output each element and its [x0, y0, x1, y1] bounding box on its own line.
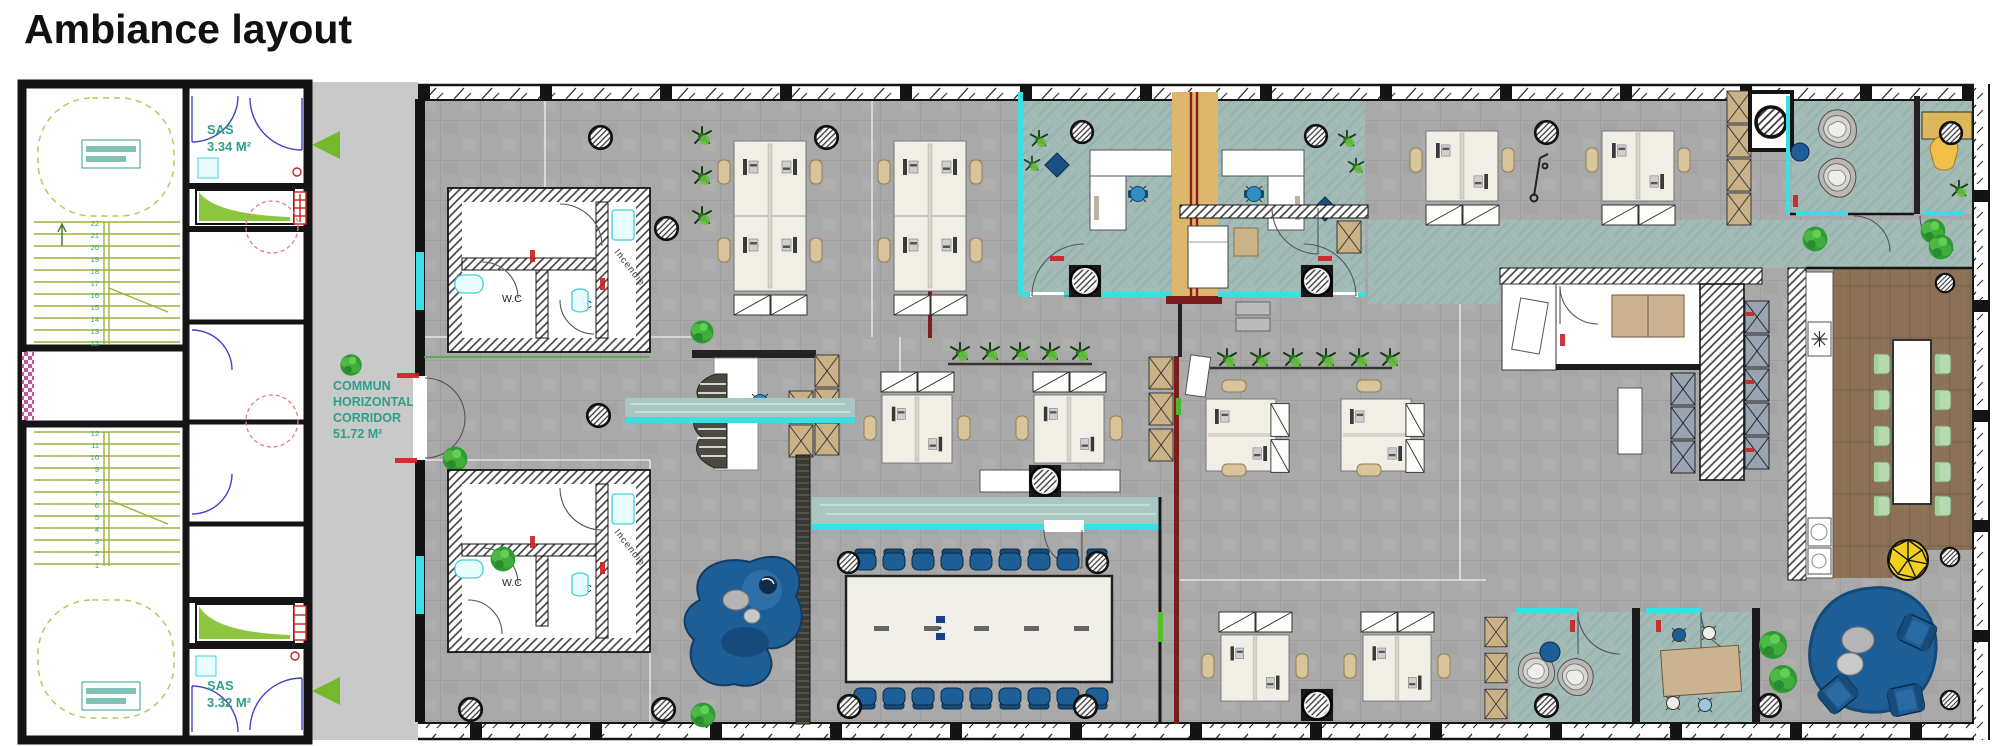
- stair-step-number: 7: [95, 489, 99, 498]
- svg-text:51.72 M²: 51.72 M²: [333, 427, 382, 441]
- boxed-column-icon: [1301, 265, 1333, 297]
- plant-icon: [443, 447, 468, 472]
- chair-white: [1666, 696, 1680, 710]
- svg-text:HORIZONTAL: HORIZONTAL: [333, 395, 414, 409]
- wc-block-top: W.C W.C Incendie: [424, 188, 650, 357]
- coffee-table: [1842, 627, 1874, 653]
- sas-fixture: [198, 158, 218, 178]
- svg-text:COMMUN: COMMUN: [333, 379, 391, 393]
- workstation-top-right-1: [1410, 131, 1514, 225]
- gray-cabinet-run-2: [1745, 301, 1769, 469]
- svg-text:CORRIDOR: CORRIDOR: [333, 411, 401, 425]
- frosted-glass-band: [812, 497, 1162, 525]
- elevator-box-top-right: [1750, 92, 1792, 150]
- stair-step-number: 12: [91, 339, 99, 348]
- door-tag: [1656, 620, 1661, 632]
- ramp-bottom: [186, 600, 308, 646]
- wardrobe: [1337, 221, 1361, 253]
- stair-step-number: 8: [95, 477, 99, 486]
- column-icon: [655, 217, 678, 240]
- side-table: [1234, 228, 1258, 256]
- glass-segment: [416, 252, 424, 310]
- column-icon: [1305, 125, 1327, 147]
- stair-note-box: [82, 140, 140, 168]
- stair-step-number: 21: [91, 231, 99, 240]
- stair-step-number: 4: [95, 525, 99, 534]
- mid-carpet-band-2: [1368, 268, 1500, 304]
- stair-step-number: 16: [91, 291, 99, 300]
- workstation-top-right-2: [1586, 131, 1690, 225]
- mid-carpet-band: [1368, 220, 1972, 268]
- column-icon: [815, 126, 838, 149]
- stair-step-number: 14: [91, 315, 99, 324]
- door-tag: [1560, 334, 1565, 346]
- green-marker: [1158, 612, 1163, 642]
- column-icon: [1940, 122, 1962, 144]
- stair-step-number: 2: [95, 549, 99, 558]
- sas-fixture: [196, 656, 216, 676]
- door-tag: [600, 562, 605, 574]
- blue-rug-lounge: [1810, 588, 1939, 718]
- stair-step-number: 12: [91, 429, 99, 438]
- stair-step-numbers-top: 2221201918171615141312: [91, 219, 99, 348]
- column-icon: [1936, 274, 1954, 292]
- wc-label: W.C: [502, 577, 522, 589]
- column-icon: [1758, 694, 1781, 717]
- stair-step-number: 17: [91, 279, 99, 288]
- column-icon: [838, 552, 859, 573]
- floor-plan-page: Ambiance layout: [0, 0, 2000, 746]
- stair-step-number: 10: [91, 453, 99, 462]
- stair-step-number: 1: [95, 561, 99, 570]
- conference-chairs-top: [854, 549, 1108, 570]
- locker-run-mid-left: [1149, 357, 1173, 461]
- door-tag: [600, 278, 605, 290]
- coffee-table: [1837, 653, 1863, 675]
- daybed: [1188, 226, 1228, 288]
- sas-top-name: SAS: [207, 122, 234, 137]
- credenza: [1618, 388, 1642, 454]
- floor-plan-canvas: 2221201918171615141312 12111: [0, 0, 2000, 746]
- door-tag: [1570, 620, 1575, 632]
- fire-ladder-icon: [294, 192, 306, 224]
- column-icon: [1941, 548, 1959, 566]
- sas-top-area: 3.34 M²: [207, 139, 252, 154]
- plant-icon: [1803, 227, 1828, 252]
- stair-step-number: 13: [91, 327, 99, 336]
- door-tag: [530, 536, 535, 548]
- hatched-pier: [1700, 284, 1744, 480]
- frosted-glass-band: [625, 398, 855, 418]
- door-tag: [530, 250, 535, 262]
- window-wall-bottom: [418, 722, 1974, 740]
- bench: [1236, 318, 1270, 331]
- boxed-column-icon: [1301, 689, 1333, 721]
- main-building: W.C W.C Incendie W.C: [340, 84, 1990, 740]
- plant-icon: [691, 703, 716, 728]
- ottoman-icon: [1540, 642, 1560, 662]
- open-desk-cluster-1: [718, 141, 822, 315]
- stair-step-number: 20: [91, 243, 99, 252]
- core-checker-strip: [22, 352, 34, 420]
- fridge-icon: [1808, 322, 1831, 356]
- stair-step-number: 19: [91, 255, 99, 264]
- boxed-column-icon: [1069, 265, 1101, 297]
- open-desk-cluster-2: [878, 141, 982, 315]
- column-icon: [1535, 121, 1558, 144]
- lounge-table: [1661, 645, 1742, 696]
- column-icon: [652, 698, 675, 721]
- column-icon: [838, 695, 861, 718]
- door-tag: [397, 373, 419, 378]
- boxed-column-icon: [1029, 465, 1061, 497]
- door-tag: [1793, 195, 1798, 207]
- gray-cabinet-run-1: [1671, 373, 1695, 473]
- chair-light-blue: [1698, 698, 1712, 712]
- stair-step-number: 9: [95, 465, 99, 474]
- sas-bottom-name: SAS: [207, 678, 234, 693]
- column-icon: [1087, 552, 1108, 573]
- sas-bottom-area: 3.32 M²: [207, 695, 252, 710]
- stair-note-box: [82, 682, 140, 710]
- stair-step-number: 6: [95, 501, 99, 510]
- column-icon: [1074, 695, 1097, 718]
- stair-step-number: 22: [91, 219, 99, 228]
- column-icon: [1071, 121, 1093, 143]
- column-icon: [587, 404, 610, 427]
- stair-step-number: 18: [91, 267, 99, 276]
- door-tag: [1318, 256, 1332, 261]
- column-icon: [459, 698, 482, 721]
- column-icon: [1941, 691, 1959, 709]
- plant-icon: [1929, 235, 1954, 260]
- plant-icon: [340, 354, 361, 375]
- window-wall-right: [1972, 84, 1990, 740]
- green-marker: [1176, 398, 1181, 415]
- wc-block-bottom: W.C W.C Incendie: [448, 470, 650, 652]
- stair-step-number: 3: [95, 537, 99, 546]
- left-service-core: 2221201918171615141312 12111: [22, 84, 308, 740]
- column-icon: [1535, 694, 1558, 717]
- ramp-top: [186, 190, 308, 229]
- door-tag: [395, 458, 417, 463]
- ottoman-icon: [1791, 143, 1809, 161]
- conference-chairs-bottom: [854, 688, 1108, 709]
- yellow-pouf: [1888, 540, 1928, 580]
- column-icon: [589, 126, 612, 149]
- door-tag: [1050, 256, 1064, 261]
- plant-icon: [1759, 631, 1787, 659]
- bench: [1236, 302, 1270, 315]
- chair-navy: [1672, 628, 1686, 642]
- stair-step-number: 15: [91, 303, 99, 312]
- stair-step-number: 11: [91, 441, 99, 450]
- credenza-center: [980, 465, 1120, 497]
- kitchen-wood-floor-2: [1833, 550, 1893, 578]
- dining-table: [1893, 340, 1931, 504]
- stair-step-number: 5: [95, 513, 99, 522]
- column-icon: [1756, 107, 1786, 137]
- plant-icon: [1769, 665, 1797, 693]
- plant-icon: [491, 547, 516, 572]
- chair-white: [1702, 626, 1716, 640]
- glass-segment: [416, 556, 424, 614]
- lounge-top-1-carpet: [1792, 96, 1912, 214]
- fire-ladder-icon: [294, 606, 306, 640]
- wc-label: W.C: [502, 293, 522, 305]
